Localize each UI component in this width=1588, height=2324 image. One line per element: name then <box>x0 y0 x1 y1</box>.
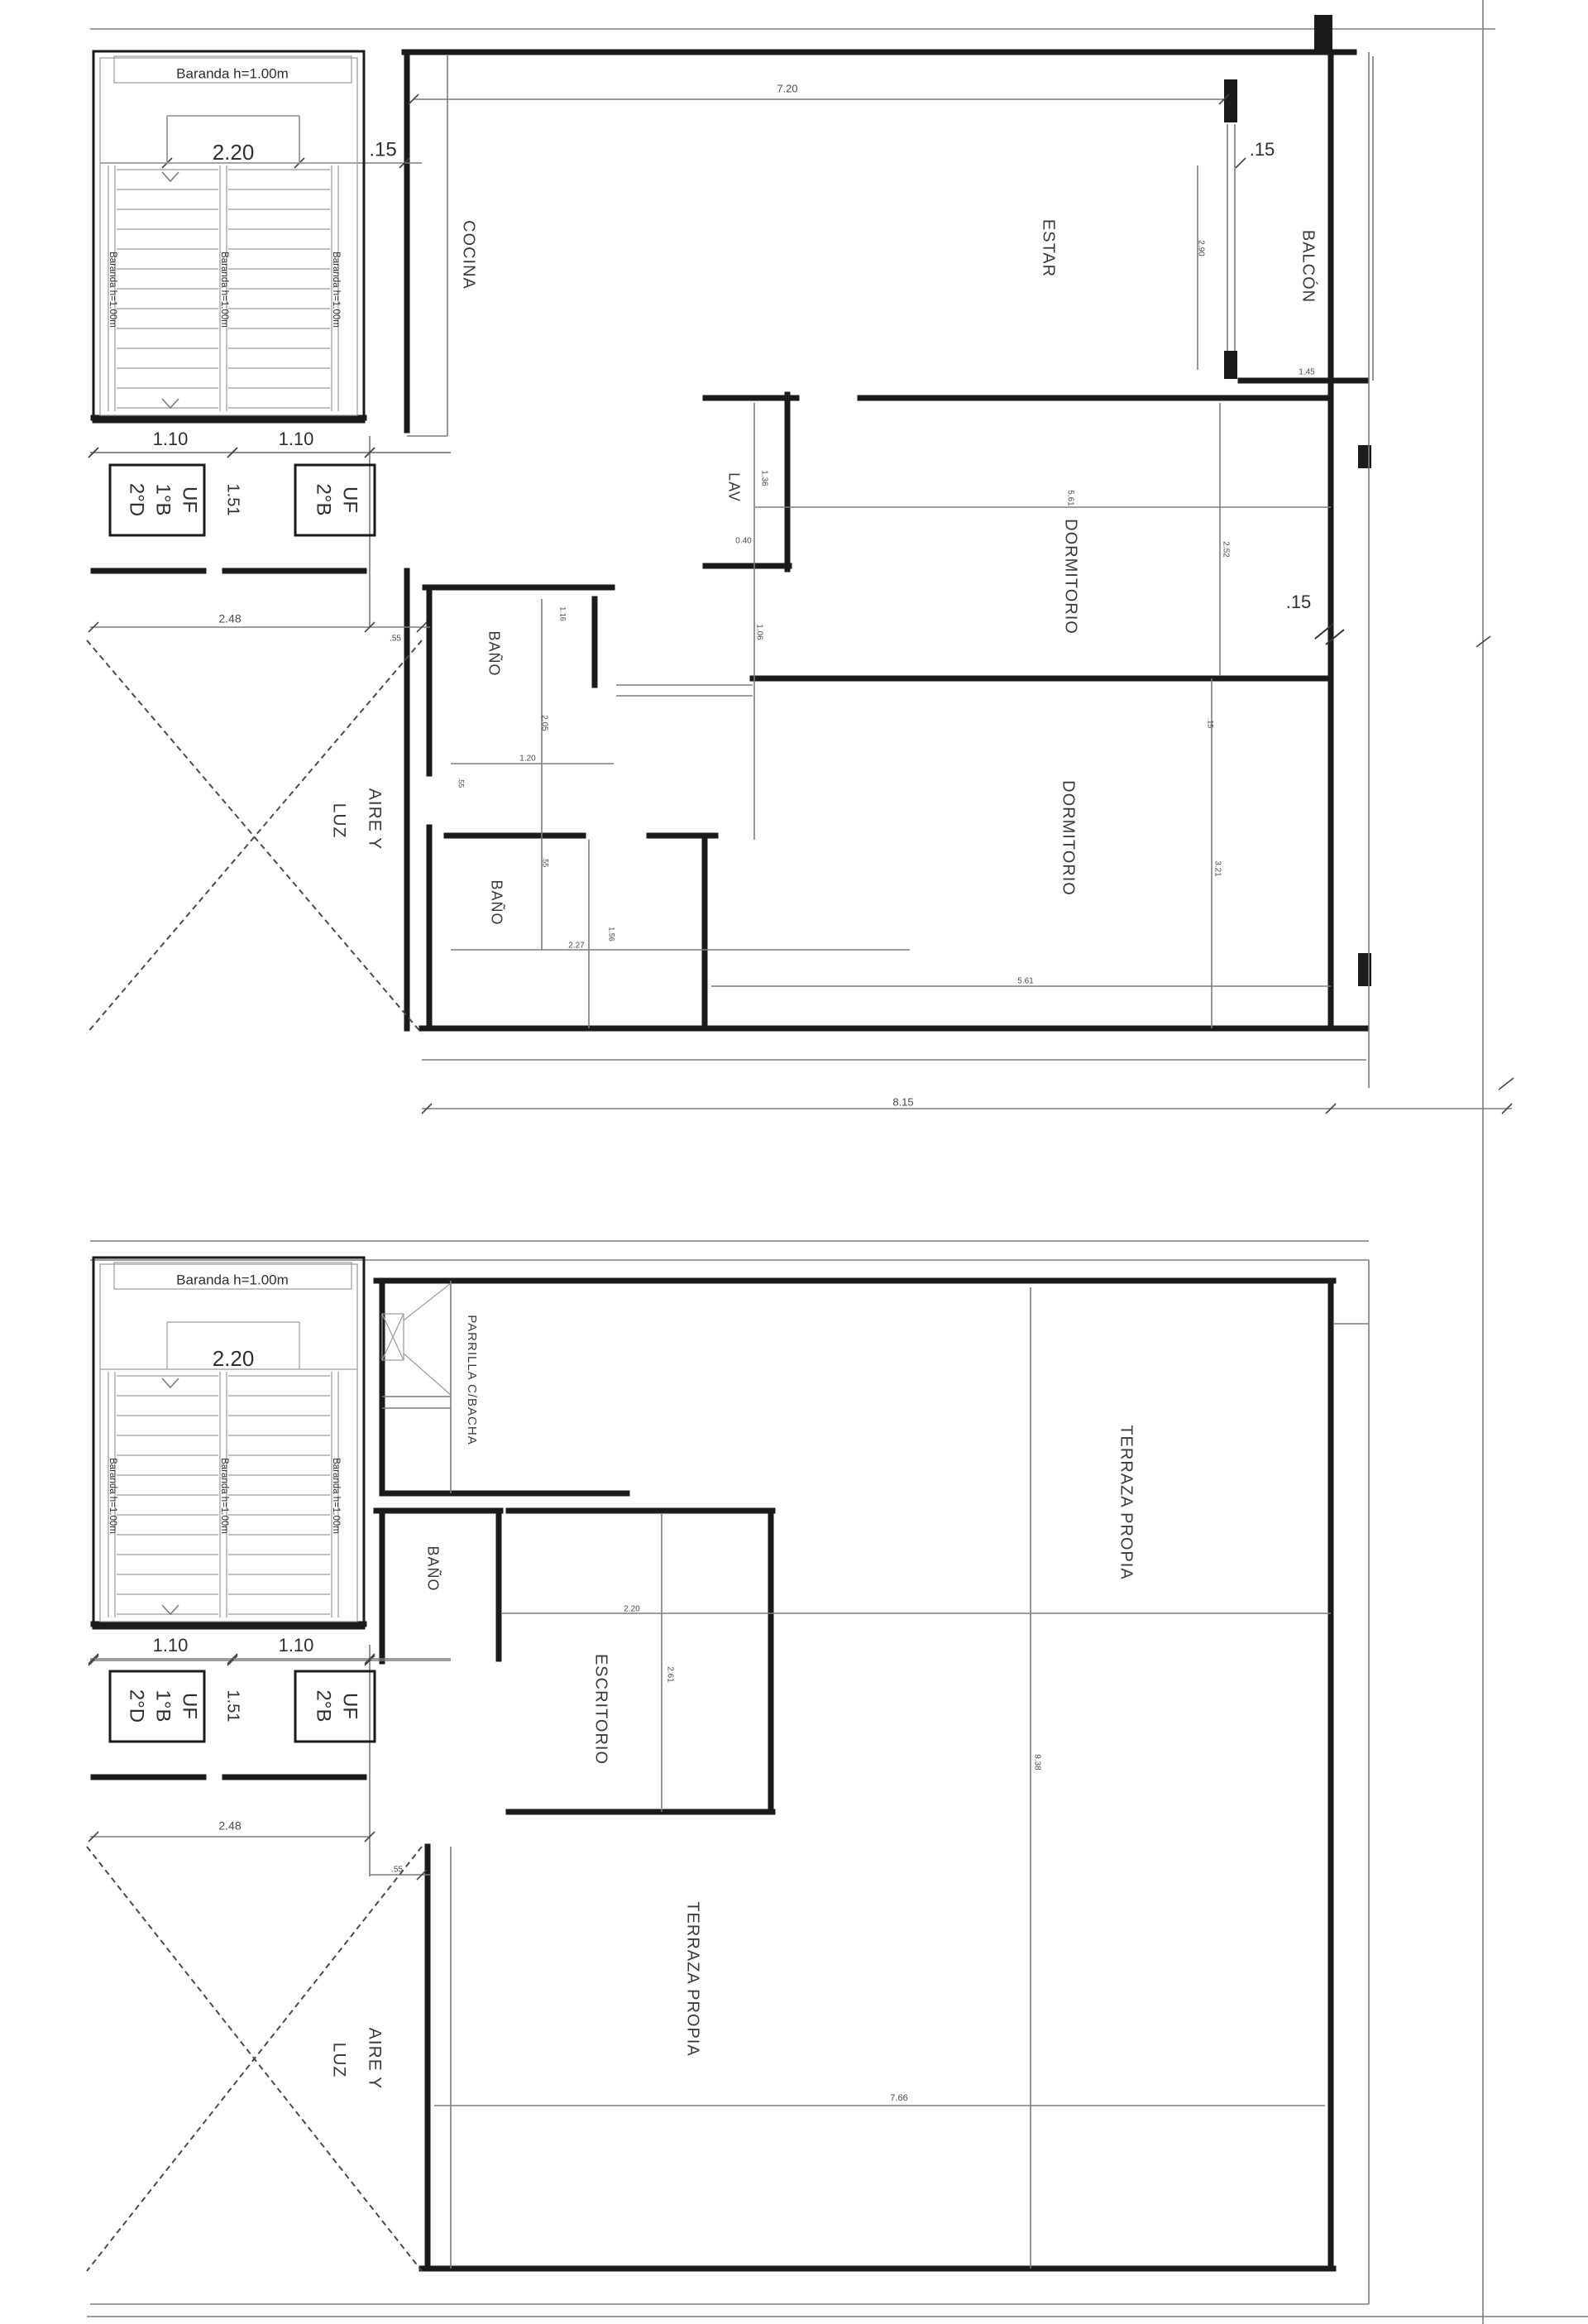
room-escritorio: ESCRITORIO <box>592 1654 610 1765</box>
room-parrilla: PARRILLA C/BACHA <box>465 1315 479 1445</box>
room-estar: ESTAR <box>1040 219 1058 277</box>
balcony-parapet-stub <box>1314 15 1332 51</box>
room-bano-2: BAÑO <box>488 879 505 925</box>
rail-label-3: Baranda h=1.00m <box>331 252 341 328</box>
escritorio-width-dim: 2.20 <box>624 1605 640 1614</box>
bano1-door-dim: 1.20 <box>519 755 536 764</box>
stair-center-dim-2: 1.51 <box>224 1690 242 1723</box>
uf-left-line3: 2°D <box>126 483 148 516</box>
rail-label-6: Baranda h=1.00m <box>331 1458 341 1534</box>
plan-top-labels: Baranda h=1.00m 2.20 .15 Baranda h=1.00m… <box>108 65 1318 1108</box>
dorm2-width-dim: 5.61 <box>1017 977 1034 986</box>
room-bano-3: BAÑO <box>424 1545 442 1591</box>
plan-top-walls <box>93 15 1366 1028</box>
uf-left-2-line2: 1°B <box>152 1690 175 1723</box>
lav-door-dim: 1.06 <box>754 624 763 640</box>
lav-width-dim: 0.40 <box>735 537 752 546</box>
baranda-header-label-2: Baranda h=1.00m <box>176 1272 289 1287</box>
top-width-dim: 7.20 <box>777 82 797 94</box>
bano2-side-dim: .55 <box>542 857 550 868</box>
floor-plan-drawing: Baranda h=1.00m 2.20 .15 Baranda h=1.00m… <box>0 0 1588 2324</box>
flight-left-dim-2: 1.10 <box>153 1635 189 1656</box>
uf-left-2-line3: 2°D <box>126 1689 148 1723</box>
block-width-dim-2: 2.48 <box>218 1819 241 1833</box>
dorm1-width-dim: 5.61 <box>1065 490 1074 506</box>
dorm2-wall-dim: .15 <box>1207 718 1215 729</box>
bano1-height-dim: 2.05 <box>539 715 548 731</box>
block-width-dim: 2.48 <box>218 612 241 625</box>
bano1-side-dim: .55 <box>457 778 466 788</box>
floor-plan-sheet: Baranda h=1.00m 2.20 .15 Baranda h=1.00m… <box>0 0 1588 2324</box>
room-lav: LAV <box>725 472 742 502</box>
rail-label-2: Baranda h=1.00m <box>219 252 229 328</box>
plan-bottom-labels: Baranda h=1.00m 2.20 Baranda h=1.00m Bar… <box>108 1272 1136 2102</box>
room-terraza-1: TERRAZA PROPIA <box>1117 1425 1136 1579</box>
balcon-height-dim: 2.90 <box>1196 240 1205 256</box>
stair-center-dim: 1.51 <box>224 484 242 516</box>
stair-width-dim-2: 2.20 <box>213 1346 255 1371</box>
terraza-width-dim: 7.66 <box>890 2093 907 2103</box>
uf-right-line1: UF <box>339 486 361 513</box>
bottom-width-dim: 8.15 <box>892 1095 913 1108</box>
dorm-wall-dim: .15 <box>1286 592 1312 612</box>
room-aire-luz-2-line1: AIRE Y <box>365 2028 384 2089</box>
stairwell-inner-border <box>100 58 357 415</box>
stair-direction-arrow <box>162 172 179 408</box>
gap-dim: .55 <box>390 635 401 644</box>
room-cocina: COCINA <box>460 220 478 290</box>
uf-left-line2: 1°B <box>152 484 175 516</box>
uf-right-line2: 2°B <box>313 484 335 516</box>
room-dormitorio-1: DORMITORIO <box>1062 519 1080 635</box>
bano2-height-dim: 1.56 <box>608 927 616 942</box>
uf-left-line1: UF <box>179 486 201 513</box>
rail-label-4: Baranda h=1.00m <box>108 1458 117 1534</box>
room-balcon: BALCÓN <box>1299 230 1318 303</box>
balcon-bottom-dim: 1.45 <box>1299 368 1315 377</box>
stair-width-dim: 2.20 <box>213 140 255 165</box>
dorm1-height-dim: 2.52 <box>1221 541 1230 558</box>
balcon-wall-dim: .15 <box>1250 139 1275 160</box>
stair-wall-dim: .15 <box>369 138 396 161</box>
baranda-header-label: Baranda h=1.00m <box>176 65 289 81</box>
stair-direction-arrow <box>162 1378 179 1614</box>
room-aire-luz-line2: LUZ <box>329 803 348 839</box>
room-dormitorio-2: DORMITORIO <box>1059 780 1078 896</box>
room-bano-1: BAÑO <box>485 630 503 676</box>
stairwell-outer-border <box>93 51 364 422</box>
room-terraza-2: TERRAZA PROPIA <box>684 1901 702 2056</box>
bano1-width-dim: 1.16 <box>559 606 567 621</box>
room-aire-luz-line1: AIRE Y <box>365 788 384 850</box>
plan-bottom-walls <box>93 1281 1333 2269</box>
rail-label-5: Baranda h=1.00m <box>219 1458 229 1534</box>
room-aire-luz-2-line2: LUZ <box>329 2043 348 2078</box>
gap-dim-2: .55 <box>391 1866 403 1875</box>
escritorio-height-dim: 2.61 <box>665 1666 674 1683</box>
stairwell-outer-border <box>93 1258 364 1628</box>
flight-right-dim: 1.10 <box>279 429 314 449</box>
terraza-height-dim: 9.38 <box>1032 1754 1041 1771</box>
flight-right-dim-2: 1.10 <box>279 1635 314 1656</box>
staircase-top-plan <box>88 51 451 535</box>
flight-left-dim: 1.10 <box>153 429 189 449</box>
plan-top-thin-lines <box>87 52 1512 1114</box>
uf-right-2-line2: 2°B <box>313 1690 335 1723</box>
lav-height-dim: 1.36 <box>759 470 768 486</box>
bano2-width-dim: 2.27 <box>568 942 585 951</box>
uf-left-2-line1: UF <box>179 1693 201 1719</box>
rail-label-1: Baranda h=1.00m <box>108 252 117 328</box>
stairwell-inner-border <box>100 1264 357 1622</box>
uf-right-2-line1: UF <box>339 1693 361 1719</box>
dorm2-height-dim: 3.21 <box>1213 860 1222 877</box>
